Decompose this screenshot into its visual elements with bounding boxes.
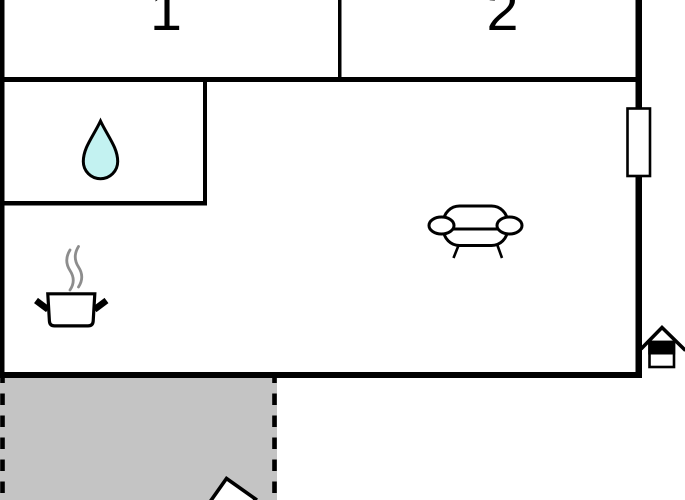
svg-text:2: 2 xyxy=(487,0,519,43)
svg-text:1: 1 xyxy=(150,0,182,43)
